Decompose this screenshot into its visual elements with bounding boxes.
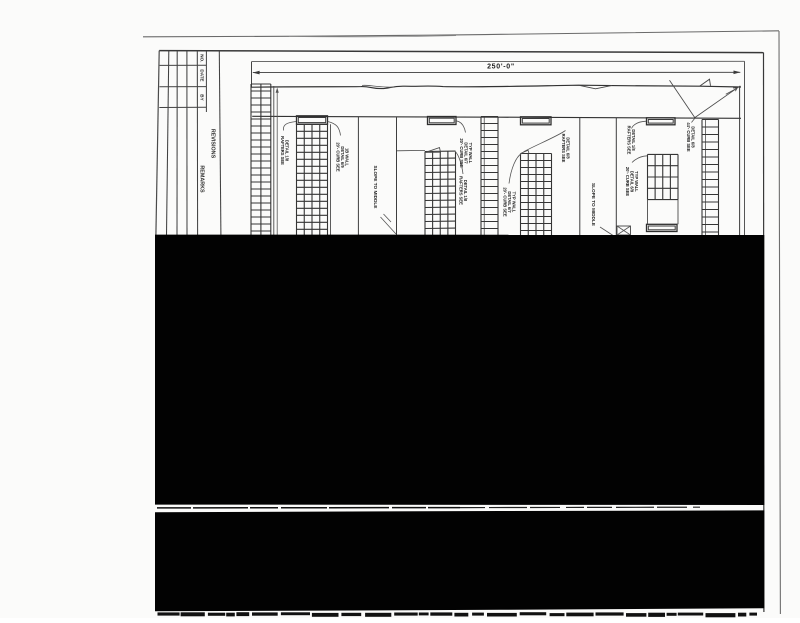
- svg-text:20'- CURB SEE: 20'- CURB SEE: [625, 167, 630, 196]
- svg-text:REVISIONS: REVISIONS: [209, 129, 215, 159]
- svg-text:DATE: DATE: [200, 69, 205, 81]
- svg-text:RAFTERS SEE: RAFTERS SEE: [458, 176, 463, 205]
- svg-text:SLOPE TO MIDDLE: SLOPE TO MIDDLE: [591, 183, 596, 226]
- svg-text:DETAIL 6/7: DETAIL 6/7: [463, 142, 468, 164]
- svg-text:NO.: NO.: [200, 54, 205, 62]
- svg-text:RAFTERS SEE: RAFTERS SEE: [627, 126, 632, 155]
- svg-text:RAFTERS SEE: RAFTERS SEE: [561, 134, 566, 163]
- svg-text:REMARKS: REMARKS: [199, 165, 205, 193]
- svg-text:TYP WALL: TYP WALL: [468, 143, 473, 164]
- svg-text:DETAIL 6/8: DETAIL 6/8: [690, 126, 695, 148]
- svg-text:DETAIL 6/8: DETAIL 6/8: [565, 137, 570, 159]
- svg-text:DETAIL 6/9: DETAIL 6/9: [340, 146, 345, 168]
- svg-text:TYP WALL: TYP WALL: [634, 171, 639, 192]
- svg-text:DETAIL 6/7: DETAIL 6/7: [507, 191, 512, 213]
- svg-text:DETAIL 1/8: DETAIL 1/8: [463, 180, 468, 202]
- svg-text:1B WALL: 1B WALL: [344, 148, 349, 166]
- svg-text:20'- CURB SEE: 20'- CURB SEE: [335, 142, 340, 171]
- svg-text:DETAIL 1/8: DETAIL 1/8: [284, 140, 289, 162]
- svg-text:BY: BY: [200, 94, 205, 100]
- svg-text:DETAIL 1/8: DETAIL 1/8: [631, 129, 636, 151]
- svg-text:20'- CURB SEE: 20'- CURB SEE: [502, 187, 507, 216]
- svg-text:DETAIL 6/9: DETAIL 6/9: [630, 171, 635, 193]
- svg-text:RAFTERS SEE: RAFTERS SEE: [280, 136, 285, 165]
- svg-text:44'- CURB SEE: 44'- CURB SEE: [686, 122, 691, 151]
- svg-text:TYP WALL: TYP WALL: [511, 192, 516, 213]
- svg-text:SLOPE TO MIDDLE: SLOPE TO MIDDLE: [373, 166, 378, 209]
- svg-text:250'-0": 250'-0": [487, 64, 515, 71]
